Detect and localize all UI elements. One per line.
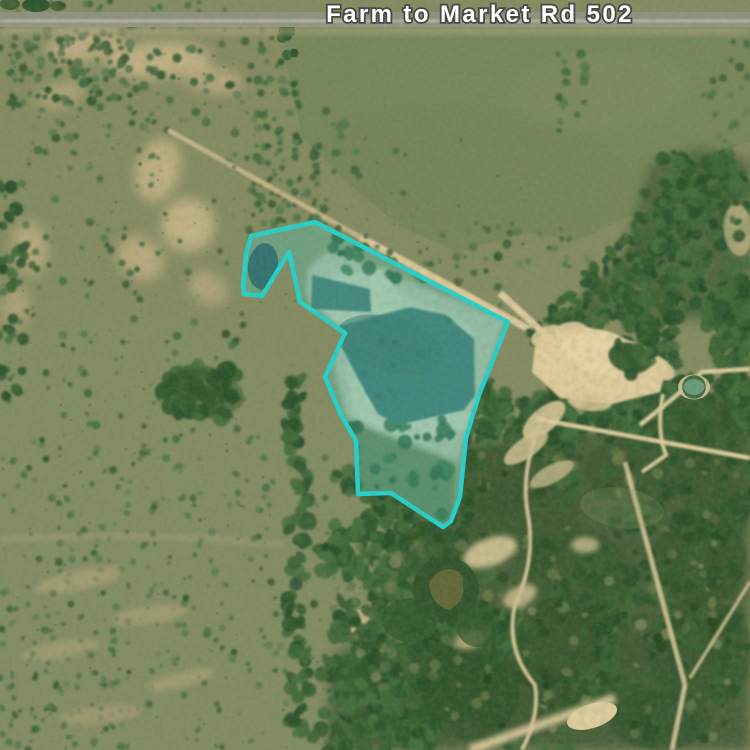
svg-text:Farm to Market Rd 502: Farm to Market Rd 502 <box>326 1 634 28</box>
